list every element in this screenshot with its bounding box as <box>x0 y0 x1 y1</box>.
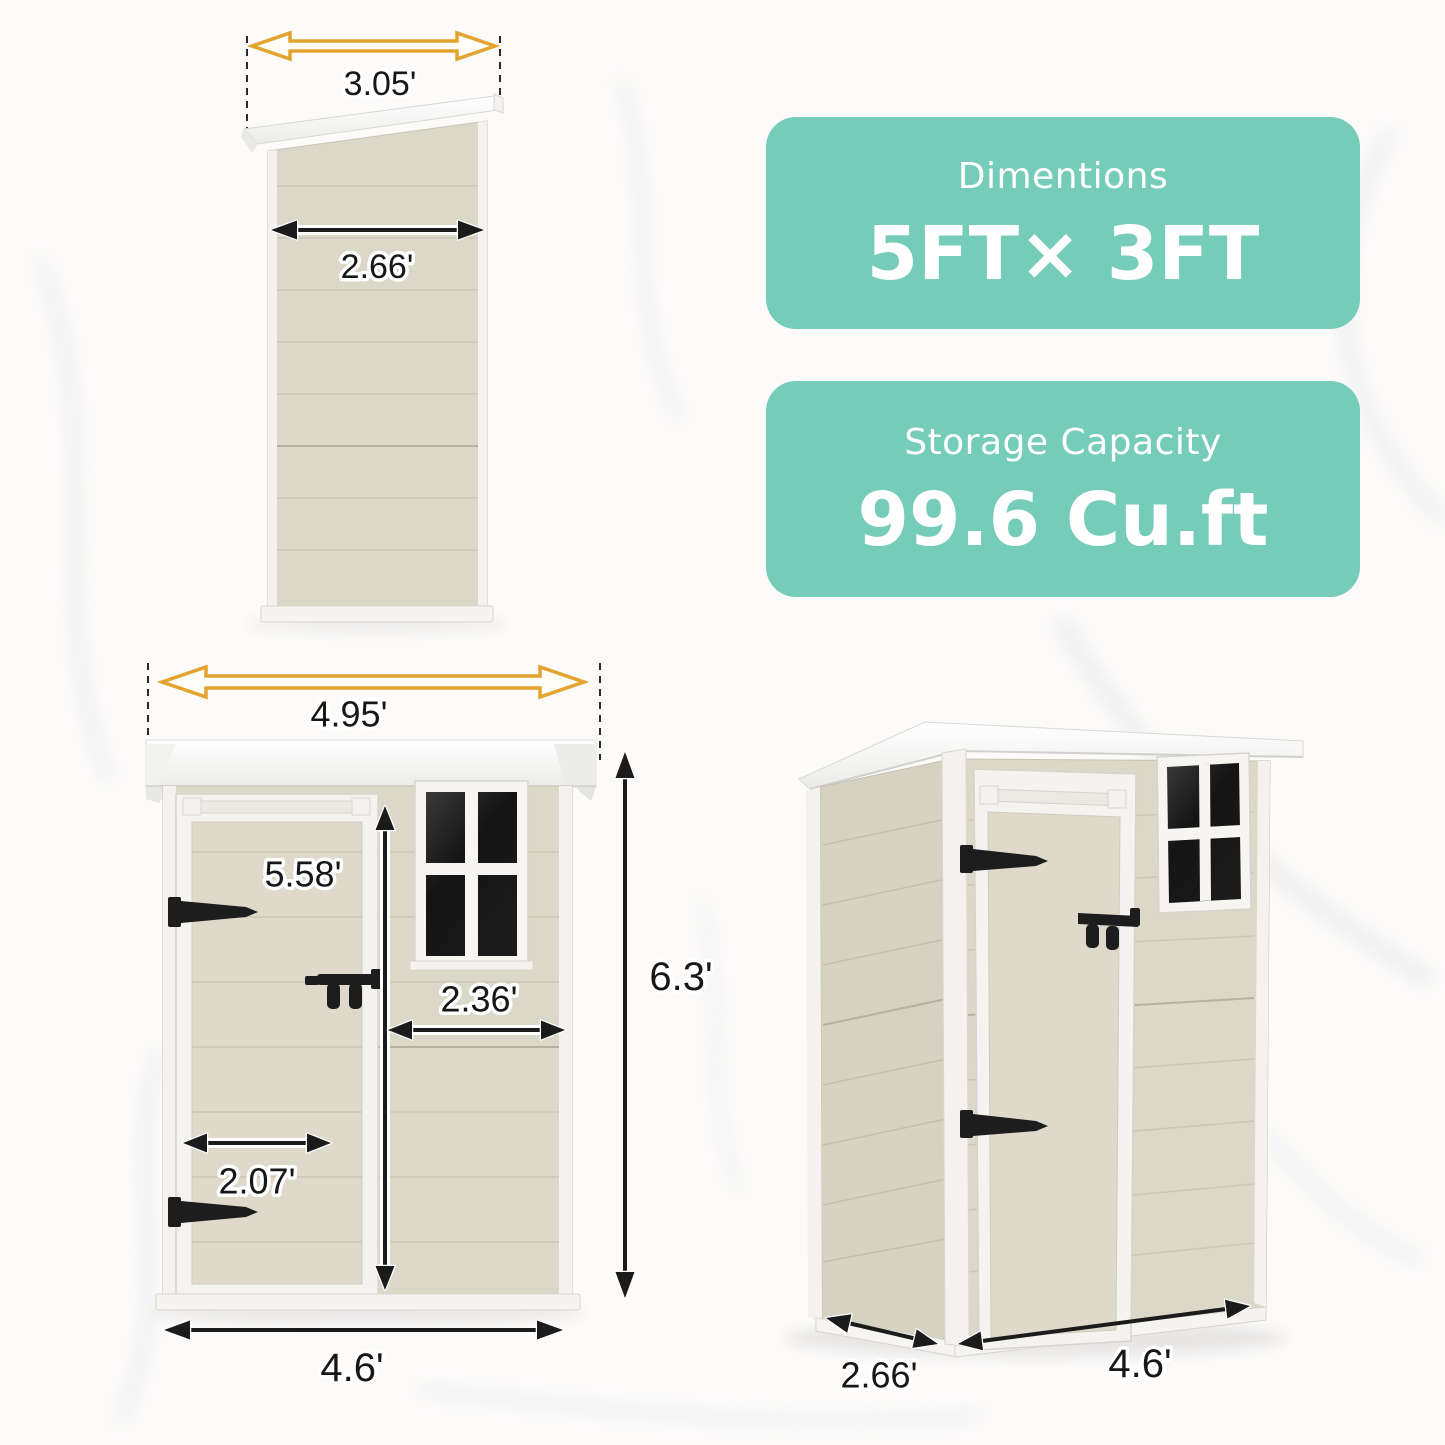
overall-width-label: 4.6' <box>320 1346 383 1390</box>
front-door-rail <box>184 801 370 813</box>
shed-dimensions-infographic: 3.05' 2.66' 4.95' <box>0 0 1445 1445</box>
perspective-door-rail-cap <box>1108 790 1126 808</box>
front-roof-width-arrow-icon <box>162 667 584 697</box>
arrowhead-icon <box>537 1321 563 1340</box>
perspective-corner-post <box>942 749 969 1347</box>
perspective-back-trim <box>806 787 822 1323</box>
perspective-door-panel <box>988 812 1120 1337</box>
arrowhead-icon <box>616 1272 635 1298</box>
arrowhead-icon <box>164 1321 190 1340</box>
door-height-label: 5.58' <box>265 854 342 895</box>
side-roof-width-arrow-icon <box>252 33 495 59</box>
perspective-width-label: 4.6' <box>1108 1342 1171 1386</box>
storage-badge-value: 99.6 Cu.ft <box>857 483 1268 557</box>
front-roof-drip-right <box>576 787 596 801</box>
front-shed-roof <box>146 740 596 787</box>
perspective-door-rail-cap <box>980 786 998 804</box>
side-shed-roof-cap <box>494 94 503 113</box>
perspective-depth-label: 2.66' <box>841 1355 918 1396</box>
storage-capacity-badge: Storage Capacity 99.6 Cu.ft <box>766 381 1360 597</box>
dimensions-badge-title: Dimentions <box>958 156 1168 197</box>
storage-badge-title: Storage Capacity <box>904 422 1222 463</box>
front-door-rail-cap <box>183 798 201 815</box>
side-shed-right-trim <box>478 121 487 608</box>
front-roof-width-label: 4.95' <box>311 694 388 735</box>
overall-height-label: 6.3' <box>649 955 712 999</box>
side-shed-wall <box>268 121 487 608</box>
front-shed-base <box>156 1294 580 1310</box>
dimensions-badge-value: 5FT× 3FT <box>867 217 1260 291</box>
perspective-view: 2.66' 4.6' <box>783 722 1303 1396</box>
side-shed-base <box>261 606 493 622</box>
front-window-sill <box>410 961 533 970</box>
side-wall-width-label: 2.66' <box>341 248 414 286</box>
front-right-trim <box>559 786 572 1298</box>
front-window-mullion-h <box>426 863 517 875</box>
side-roof-width-label: 3.05' <box>344 65 417 103</box>
window-width-label: 2.36' <box>441 979 518 1020</box>
dimensions-badge: Dimentions 5FT× 3FT <box>766 117 1360 329</box>
door-width-label: 2.07' <box>219 1161 296 1202</box>
front-view: 4.95' <box>146 663 713 1390</box>
front-door-rail-cap <box>352 798 370 815</box>
side-shed-left-trim <box>268 150 277 608</box>
side-view: 3.05' 2.66' <box>241 33 509 633</box>
arrowhead-icon <box>616 752 635 778</box>
perspective-left-wall <box>820 759 955 1343</box>
